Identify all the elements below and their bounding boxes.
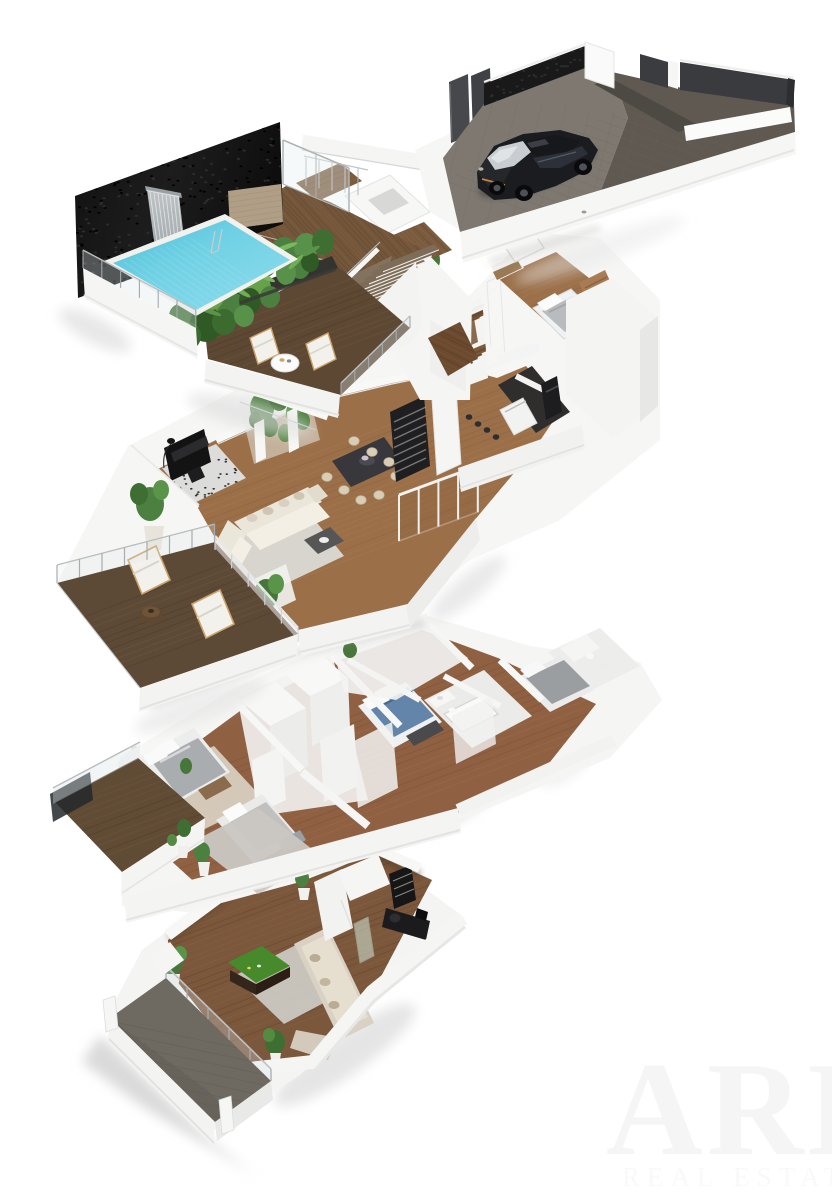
svg-text:ARE: ARE [606, 1035, 832, 1183]
svg-text:REAL ESTATE: REAL ESTATE [622, 1162, 832, 1192]
